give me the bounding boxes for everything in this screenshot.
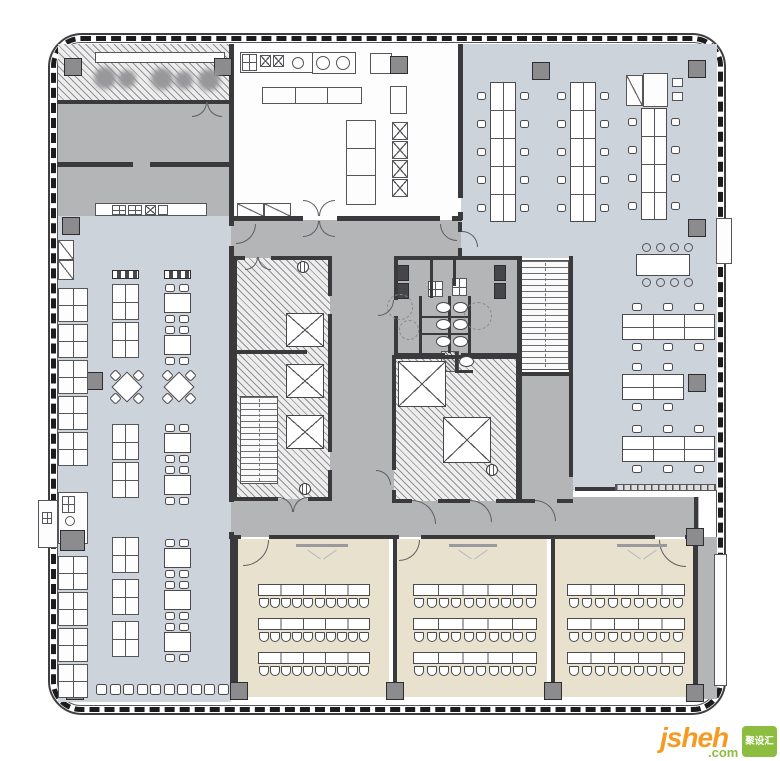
dining-chair — [179, 623, 189, 631]
room-vestibule — [231, 220, 461, 260]
booth-seat — [58, 288, 88, 322]
west-bay-unit — [42, 512, 52, 524]
conference-chair — [684, 243, 693, 252]
dining-table — [112, 537, 139, 573]
classroom-chair — [582, 598, 592, 608]
desk-row — [570, 82, 596, 222]
classroom-chair — [489, 632, 499, 642]
classroom-table — [258, 652, 370, 664]
office-chair — [477, 176, 486, 184]
office-chair — [632, 465, 642, 473]
dining-table — [164, 548, 191, 568]
dining-chair — [191, 684, 202, 695]
kitchen-burner — [260, 55, 271, 67]
wall — [328, 256, 332, 296]
booth-seat — [58, 664, 88, 698]
watermark-logo: jsheh .com 聚设汇 — [660, 722, 778, 760]
desk-row — [622, 436, 715, 462]
conference-chair — [642, 278, 651, 287]
dining-chair — [150, 684, 161, 695]
wall — [392, 355, 396, 470]
projection-screen — [617, 544, 667, 547]
classroom-chair — [526, 666, 536, 676]
office-chair — [694, 465, 704, 473]
desk-row — [490, 82, 516, 222]
dining-chair — [179, 466, 189, 474]
east-bay-upper — [716, 218, 732, 264]
keynote-marker — [486, 464, 498, 476]
classroom-chair — [501, 598, 511, 608]
terrace-table — [198, 69, 220, 91]
dining-table — [164, 433, 191, 453]
classroom-chair — [582, 632, 592, 642]
floor-drain — [399, 320, 419, 340]
dining-chair — [204, 684, 215, 695]
plan-canvas — [0, 0, 780, 761]
office-chair — [520, 92, 529, 100]
wall — [455, 370, 473, 373]
conference-table — [636, 254, 690, 276]
classroom-chair — [608, 666, 618, 676]
column — [64, 58, 82, 76]
elevator-shaft — [286, 313, 324, 347]
dining-chair — [137, 684, 148, 695]
office-chair — [663, 343, 673, 351]
elevator-shaft — [398, 361, 446, 407]
classroom-chair — [569, 666, 579, 676]
classroom-chair — [270, 666, 280, 676]
office-chair — [663, 425, 673, 433]
wall — [394, 256, 522, 260]
wall — [693, 539, 698, 697]
terrace-table — [151, 68, 173, 90]
west-bay — [38, 500, 58, 548]
classroom-chair — [281, 632, 291, 642]
classroom-chair — [270, 632, 280, 642]
office-chair — [477, 92, 486, 100]
toilet-icon — [436, 336, 451, 347]
wok-burner — [336, 56, 350, 70]
wall — [453, 258, 456, 286]
toilet-icon — [453, 336, 468, 347]
room-room-below-stair — [519, 374, 573, 503]
servery-appliance — [128, 205, 142, 215]
wall — [569, 374, 573, 477]
urinal — [494, 265, 506, 281]
column — [544, 682, 562, 700]
classroom-chair — [464, 598, 474, 608]
office-chair — [520, 176, 529, 184]
office-chair — [520, 120, 529, 128]
classroom-chair — [501, 666, 511, 676]
office-chair — [628, 118, 637, 126]
office-chair — [557, 204, 566, 212]
wall — [229, 104, 234, 216]
toilet-icon — [459, 356, 474, 367]
classroom-chair — [569, 598, 579, 608]
dining-table — [112, 424, 139, 460]
booth-seat — [58, 556, 88, 590]
dining-chair — [165, 612, 175, 620]
classroom-chair — [621, 598, 631, 608]
room-corridor-vertical — [330, 258, 394, 503]
office-chair — [600, 204, 609, 212]
office-chair — [663, 465, 673, 473]
dining-chair — [96, 684, 107, 695]
classroom-table — [413, 618, 537, 630]
dining-chair — [177, 684, 188, 695]
dining-chair — [110, 684, 121, 695]
office-chair — [632, 403, 642, 411]
column — [230, 682, 248, 700]
classroom-chair — [337, 666, 347, 676]
classroom-chair — [464, 632, 474, 642]
classroom-table — [567, 652, 685, 664]
dining-cabinet — [58, 240, 74, 260]
stair-right — [521, 260, 569, 370]
dining-chair — [165, 466, 175, 474]
classroom-chair — [621, 666, 631, 676]
keynote-marker — [299, 483, 311, 495]
classroom-chair — [427, 632, 437, 642]
office-chair — [600, 92, 609, 100]
conference-chair — [642, 243, 651, 252]
office-chair — [663, 403, 673, 411]
office-chair — [477, 148, 486, 156]
wall — [452, 216, 462, 221]
wall — [230, 539, 238, 697]
classroom-table — [567, 584, 685, 596]
wall — [419, 296, 422, 353]
dining-chair — [179, 326, 189, 334]
booth-seat — [58, 432, 88, 466]
classroom-chair — [621, 632, 631, 642]
classroom-chair — [326, 632, 336, 642]
wall — [394, 316, 398, 357]
booth-seat — [58, 396, 88, 430]
office-chair — [557, 176, 566, 184]
desk-row — [622, 314, 715, 340]
classroom-chair — [526, 632, 536, 642]
wall — [419, 316, 468, 318]
dining-chair — [179, 654, 189, 662]
office-chair — [600, 120, 609, 128]
bench-seat — [112, 270, 139, 279]
dining-table — [164, 335, 191, 355]
watermark-badge: 聚设汇 — [742, 726, 777, 757]
office-chair — [628, 202, 637, 210]
servery-appliance — [145, 205, 156, 215]
desk-row — [641, 108, 667, 220]
floor-plan: jsheh .com 聚设汇 — [0, 0, 780, 761]
classroom-chair — [427, 598, 437, 608]
dining-chair — [165, 424, 175, 432]
servery-appliance — [112, 205, 126, 215]
classroom-table — [413, 652, 537, 664]
desk-row — [622, 374, 684, 400]
classroom-table — [258, 618, 370, 630]
booth-seat — [58, 592, 88, 626]
wall — [458, 44, 463, 198]
urinal — [397, 265, 409, 281]
wall — [557, 499, 573, 503]
office-chair — [557, 148, 566, 156]
office-chair — [671, 174, 680, 182]
conference-chair — [670, 278, 679, 287]
column — [688, 60, 706, 78]
dining-table — [164, 293, 191, 313]
classroom-chair — [281, 598, 291, 608]
office-chair — [628, 174, 637, 182]
dining-table — [112, 462, 139, 498]
classroom-chair — [501, 632, 511, 642]
dining-cabinet — [58, 260, 74, 280]
column — [386, 682, 404, 700]
dining-table — [112, 579, 139, 615]
classroom-chair — [337, 632, 347, 642]
elevator-shaft — [286, 415, 324, 449]
office-cabinet — [626, 75, 643, 106]
watermark-suffix: .com — [708, 745, 738, 760]
classroom-chair — [526, 598, 536, 608]
kitchen-tall-counter — [346, 120, 376, 205]
office-chair — [632, 343, 642, 351]
classroom-table — [413, 584, 537, 596]
bench-seat — [164, 270, 191, 279]
room-private-room — [58, 102, 231, 164]
dining-table — [164, 632, 191, 652]
dining-chair — [179, 612, 189, 620]
dining-chair — [179, 497, 189, 505]
column — [686, 528, 704, 546]
kitchen-cooker — [392, 160, 408, 178]
classroom-chair — [439, 632, 449, 642]
office-printer — [672, 78, 683, 87]
niche-fixture — [65, 516, 75, 526]
classroom-chair — [270, 598, 280, 608]
office-printer — [672, 92, 683, 101]
classroom-chair — [489, 666, 499, 676]
classroom-chair — [595, 632, 605, 642]
office-chair — [671, 202, 680, 210]
classroom-chair — [326, 598, 336, 608]
column — [390, 56, 408, 74]
prep-sink — [292, 57, 304, 69]
servery-appliance — [158, 205, 168, 215]
column — [688, 219, 706, 237]
kitchen-island — [262, 87, 362, 104]
elevator-shaft — [286, 364, 324, 398]
classroom-table — [258, 584, 370, 596]
office-low-partition — [615, 484, 716, 491]
classroom-chair — [259, 632, 269, 642]
projection-screen — [296, 544, 348, 547]
kitchen-burner — [273, 55, 284, 67]
classroom-chair — [337, 598, 347, 608]
classroom-chair — [569, 632, 579, 642]
conference-chair — [656, 278, 665, 287]
column — [688, 374, 706, 392]
wall — [392, 499, 412, 503]
column — [62, 217, 80, 235]
wall — [231, 535, 241, 539]
office-chair — [671, 118, 680, 126]
classroom-chair — [259, 666, 269, 676]
booth-seat — [58, 324, 88, 358]
classroom-chair — [489, 598, 499, 608]
office-chair — [520, 204, 529, 212]
classroom-chair — [439, 598, 449, 608]
dining-chair — [179, 570, 189, 578]
dining-chair — [179, 357, 189, 365]
kitchen-sink — [242, 54, 257, 71]
classroom-chair — [281, 666, 291, 676]
dining-chair — [179, 315, 189, 323]
office-chair — [632, 303, 642, 311]
dining-chair — [123, 684, 134, 695]
wall — [569, 256, 573, 374]
wall — [419, 333, 468, 335]
niche-equipment — [60, 530, 85, 551]
dining-chair — [165, 284, 175, 292]
keynote-marker — [297, 261, 309, 273]
office-chair — [600, 148, 609, 156]
dining-table — [164, 590, 191, 610]
column — [686, 684, 704, 702]
office-chair — [477, 120, 486, 128]
wall — [237, 350, 307, 354]
dining-niche-unit — [62, 496, 75, 513]
office-l-desk — [643, 73, 668, 107]
classroom-chair — [439, 666, 449, 676]
conference-chair — [670, 243, 679, 252]
wall — [231, 216, 303, 221]
office-chair — [663, 363, 673, 371]
office-chair — [694, 425, 704, 433]
dining-table — [164, 475, 191, 495]
kitchen-cooker — [392, 122, 408, 140]
office-chair — [557, 120, 566, 128]
office-chair — [520, 148, 529, 156]
booth-seat — [58, 360, 88, 394]
toilet-icon — [436, 302, 451, 313]
office-chair — [632, 425, 642, 433]
elevator-shaft — [443, 417, 491, 463]
dining-chair — [165, 654, 175, 662]
wall — [430, 258, 433, 298]
classroom-chair — [315, 598, 325, 608]
floor-drain — [464, 302, 492, 330]
wall — [150, 162, 231, 167]
classroom-chair — [427, 666, 437, 676]
dining-chair — [218, 684, 229, 695]
dining-table — [112, 284, 139, 320]
kitchen-counter-low — [237, 203, 264, 217]
wok-burner — [316, 56, 330, 70]
dining-chair — [165, 539, 175, 547]
dining-table — [112, 322, 139, 358]
office-chair — [632, 363, 642, 371]
kitchen-cooker — [392, 141, 408, 159]
classroom-chair — [464, 666, 474, 676]
office-chair — [628, 146, 637, 154]
terrace-table — [175, 71, 193, 89]
toilet-icon — [436, 319, 451, 330]
dining-chair — [179, 284, 189, 292]
dining-chair — [165, 570, 175, 578]
kitchen-equipment — [370, 53, 392, 74]
classroom-chair — [595, 666, 605, 676]
dining-chair — [165, 315, 175, 323]
dining-chair — [165, 357, 175, 365]
classroom-chair — [595, 598, 605, 608]
office-chair — [694, 343, 704, 351]
office-chair — [600, 176, 609, 184]
kitchen-equipment — [390, 86, 407, 114]
classroom-chair — [315, 666, 325, 676]
kitchen-cooker — [392, 179, 408, 197]
dining-chair — [165, 581, 175, 589]
terrace-table — [118, 70, 136, 88]
east-bay-lower — [714, 554, 727, 686]
wall — [519, 499, 535, 503]
stair-core-left — [240, 396, 278, 484]
dining-chair — [164, 684, 175, 695]
wall — [551, 539, 555, 697]
wall — [337, 216, 440, 221]
column — [532, 62, 550, 80]
wall — [438, 499, 470, 503]
wall — [57, 162, 133, 167]
dining-table — [112, 621, 139, 657]
wall — [233, 497, 278, 501]
conference-chair — [684, 278, 693, 287]
urinal — [494, 283, 506, 299]
dining-chair — [165, 497, 175, 505]
classroom-chair — [582, 666, 592, 676]
dining-chair — [179, 455, 189, 463]
office-chair — [663, 303, 673, 311]
dining-chair — [165, 623, 175, 631]
kitchen-counter-low — [264, 203, 291, 217]
classroom-chair — [608, 598, 618, 608]
projection-screen — [449, 544, 497, 547]
wall — [519, 372, 571, 376]
wall — [496, 499, 518, 503]
classroom-table — [567, 618, 685, 630]
dining-chair — [165, 455, 175, 463]
conference-chair — [656, 243, 665, 252]
office-chair — [557, 92, 566, 100]
dining-chair — [165, 326, 175, 334]
wall — [269, 535, 399, 539]
wall — [517, 256, 522, 503]
classroom-chair — [315, 632, 325, 642]
dining-chair — [179, 539, 189, 547]
wall — [328, 314, 332, 452]
booth-seat — [58, 628, 88, 662]
terrace-table — [94, 67, 116, 89]
classroom-chair — [608, 632, 618, 642]
wall — [233, 256, 237, 501]
wall — [271, 256, 332, 260]
wall — [421, 535, 655, 539]
wall — [392, 355, 518, 359]
office-chair — [477, 204, 486, 212]
dining-chair — [179, 581, 189, 589]
classroom-chair — [259, 598, 269, 608]
classroom-chair — [326, 666, 336, 676]
